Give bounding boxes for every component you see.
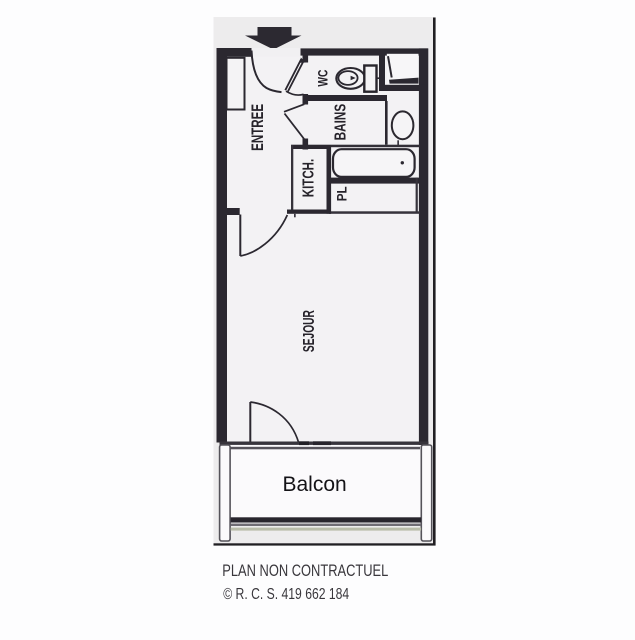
svg-text:ENTREE: ENTREE: [248, 104, 267, 151]
svg-text:© R. C. S. 419 662 184: © R. C. S. 419 662 184: [223, 586, 349, 603]
svg-text:BAINS: BAINS: [333, 104, 350, 141]
svg-text:PLAN NON CONTRACTUEL: PLAN NON CONTRACTUEL: [222, 562, 388, 580]
svg-text:Balcon: Balcon: [282, 473, 346, 496]
svg-text:KITCH.: KITCH.: [300, 159, 317, 198]
svg-text:SEJOUR: SEJOUR: [301, 310, 318, 352]
svg-text:WC: WC: [314, 70, 330, 87]
svg-text:PL: PL: [334, 186, 350, 201]
